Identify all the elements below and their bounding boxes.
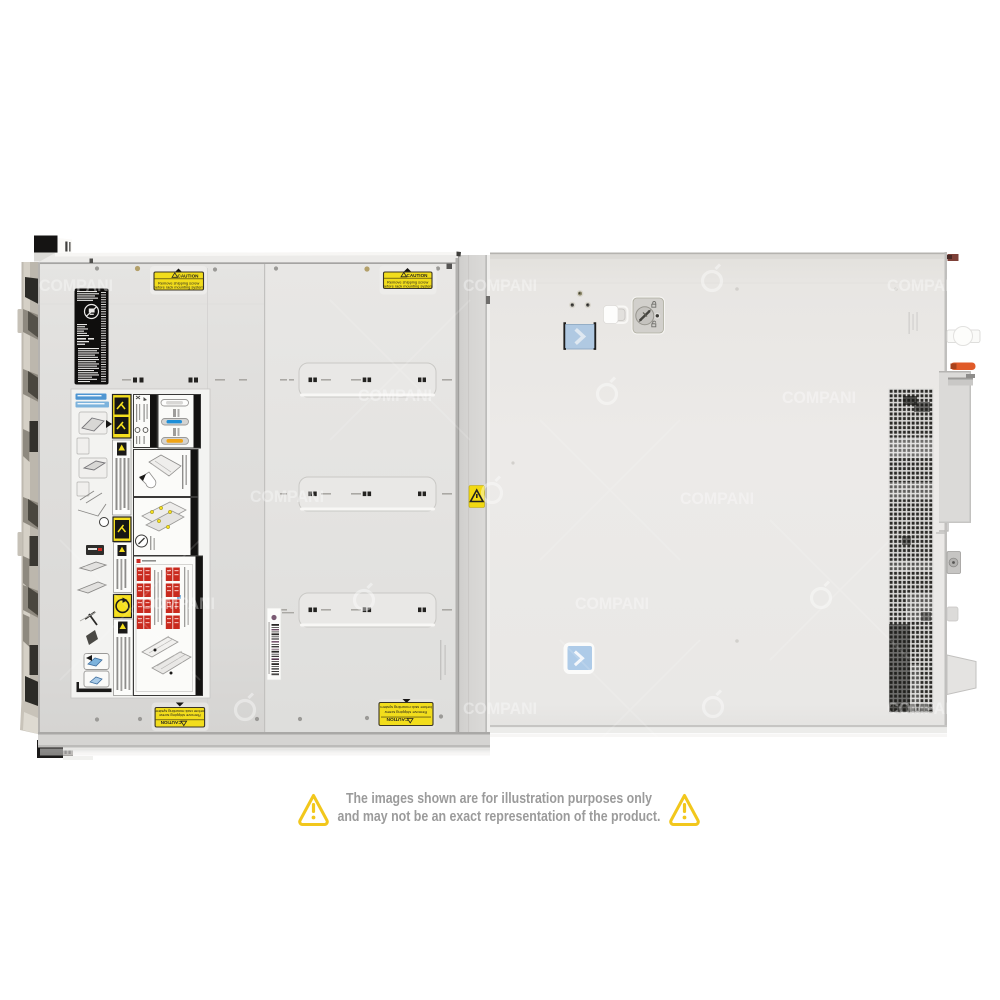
svg-text:before rack mounting system: before rack mounting system: [154, 285, 204, 290]
svg-text:and may not be an exact repres: and may not be an exact representation o…: [338, 808, 661, 825]
svg-text:before rack mounting system: before rack mounting system: [155, 709, 205, 714]
svg-text:CAUTION: CAUTION: [407, 273, 429, 278]
svg-text:before rack mounting system: before rack mounting system: [380, 705, 432, 710]
svg-text:COMPANI: COMPANI: [250, 487, 324, 506]
svg-text:CAUTION: CAUTION: [386, 716, 408, 722]
svg-text:COMPANI: COMPANI: [680, 489, 754, 508]
svg-text:COMPANI: COMPANI: [887, 699, 961, 718]
svg-text:CAUTION: CAUTION: [160, 720, 182, 725]
svg-text:COMPANI: COMPANI: [358, 386, 432, 405]
svg-text:COMPANI: COMPANI: [141, 594, 215, 613]
svg-text:COMPANI: COMPANI: [463, 699, 537, 718]
svg-text:The images shown are for illus: The images shown are for illustration pu…: [346, 790, 653, 807]
svg-text:COMPANI: COMPANI: [39, 276, 113, 295]
svg-text:CAUTION: CAUTION: [178, 274, 200, 279]
svg-text:COMPANI: COMPANI: [575, 594, 649, 613]
svg-text:COMPANI: COMPANI: [782, 388, 856, 407]
svg-text:before rack mounting system: before rack mounting system: [383, 283, 433, 288]
svg-text:COMPANI: COMPANI: [887, 276, 961, 295]
svg-text:COMPANI: COMPANI: [463, 276, 537, 295]
